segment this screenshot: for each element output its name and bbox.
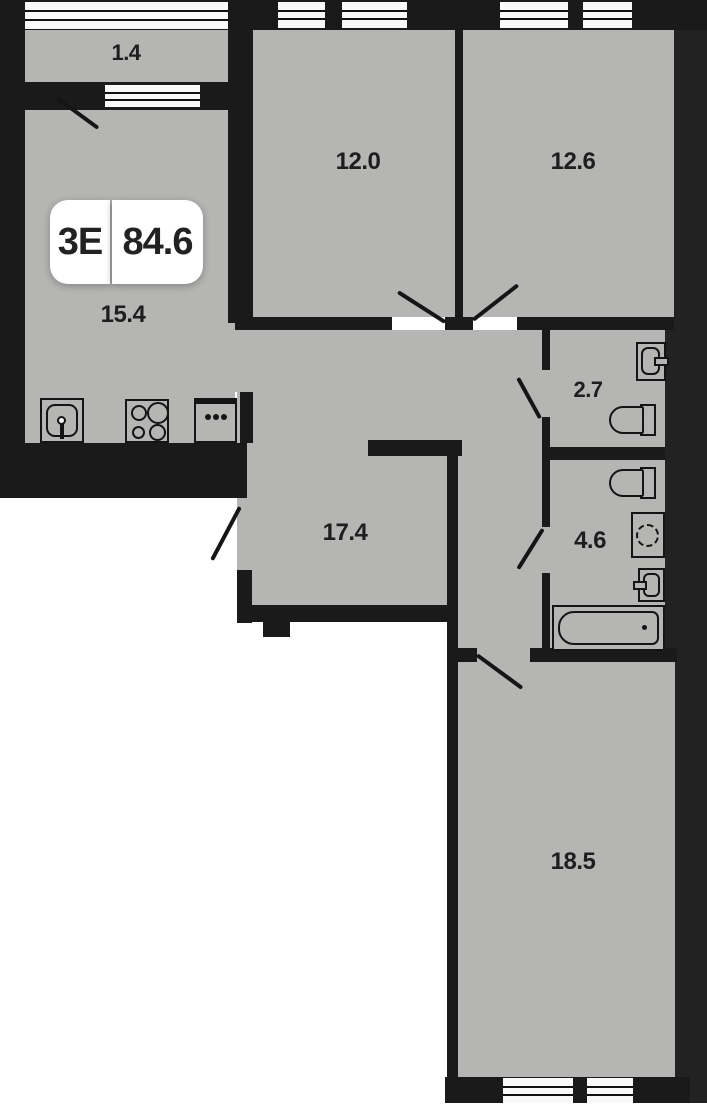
bedroom1-window-2: [342, 2, 407, 28]
apartment-area-label: 84.6: [123, 221, 193, 264]
wall-hall-pier: [263, 620, 290, 637]
balcony-kitchen-window: [105, 85, 200, 107]
wall-bedroom-divider: [455, 30, 463, 317]
wall-left: [0, 0, 25, 498]
living-window-2: [587, 1078, 633, 1103]
wall-living-top-stub: [458, 648, 477, 662]
wall-bathroom-left-upper: [542, 460, 550, 527]
bedroom2-window-2: [583, 2, 632, 28]
wall-wc-bathroom-divider: [542, 447, 665, 460]
building-mass-right-mid: [665, 317, 707, 652]
washing-machine-icon: [631, 512, 665, 558]
wc-sink-icon: [636, 342, 666, 381]
bedroom2-area-label: 12.6: [551, 148, 596, 176]
living-area-label: 18.5: [551, 848, 596, 876]
bedroom2-window-1: [500, 2, 568, 28]
floor-hallway: [237, 330, 447, 605]
bedroom1-window-1: [278, 2, 325, 28]
apartment-type-label: 3E: [58, 221, 102, 264]
living-window-1: [503, 1078, 573, 1103]
wall-bathroom-left-lower: [542, 573, 550, 648]
stove-icon: [125, 399, 169, 443]
bathtub-icon: [552, 605, 665, 651]
floor-plan: 1.4 12.0 12.6 15.4 2.7 4.6 17.4 18.5 3E …: [0, 0, 707, 1110]
kitchen-sink-icon: [40, 398, 84, 443]
apartment-type-badge: 3E: [50, 200, 110, 284]
wc-area-label: 2.7: [573, 377, 602, 403]
wall-below-kitchen: [0, 443, 247, 498]
balcony-area-label: 1.4: [111, 40, 140, 66]
apartment-badge: 3E 84.6: [50, 200, 203, 284]
wall-hall-right-vertical: [447, 455, 458, 1077]
apartment-area-badge: 84.6: [112, 200, 203, 284]
bathroom-toilet-icon: [609, 467, 656, 499]
hallway-area-label: 17.4: [323, 519, 368, 547]
wall-hall-top-right: [368, 440, 462, 456]
building-mass-right-bottom: [675, 652, 707, 1103]
wall-bedrooms-bottom-stub: [445, 317, 473, 330]
balcony-window: [25, 2, 228, 29]
wall-wc-left-lower: [542, 417, 550, 447]
wall-bedrooms-bottom-left: [235, 317, 392, 330]
wall-kitchen-stub: [240, 392, 253, 443]
bedroom1-area-label: 12.0: [336, 148, 381, 176]
wall-kitchen-bedroom1: [228, 0, 253, 323]
building-mass-right-top: [674, 0, 707, 317]
bathroom-area-label: 4.6: [574, 527, 606, 555]
wall-bedrooms-bottom-right: [517, 317, 674, 330]
wall-wc-left-upper: [542, 330, 550, 370]
bathroom-sink-icon: [638, 568, 665, 602]
kitchen-counter-icon: [194, 398, 237, 443]
wc-toilet-icon: [609, 404, 656, 436]
kitchen-area-label: 15.4: [101, 301, 146, 329]
floor-corridor: [458, 457, 542, 662]
